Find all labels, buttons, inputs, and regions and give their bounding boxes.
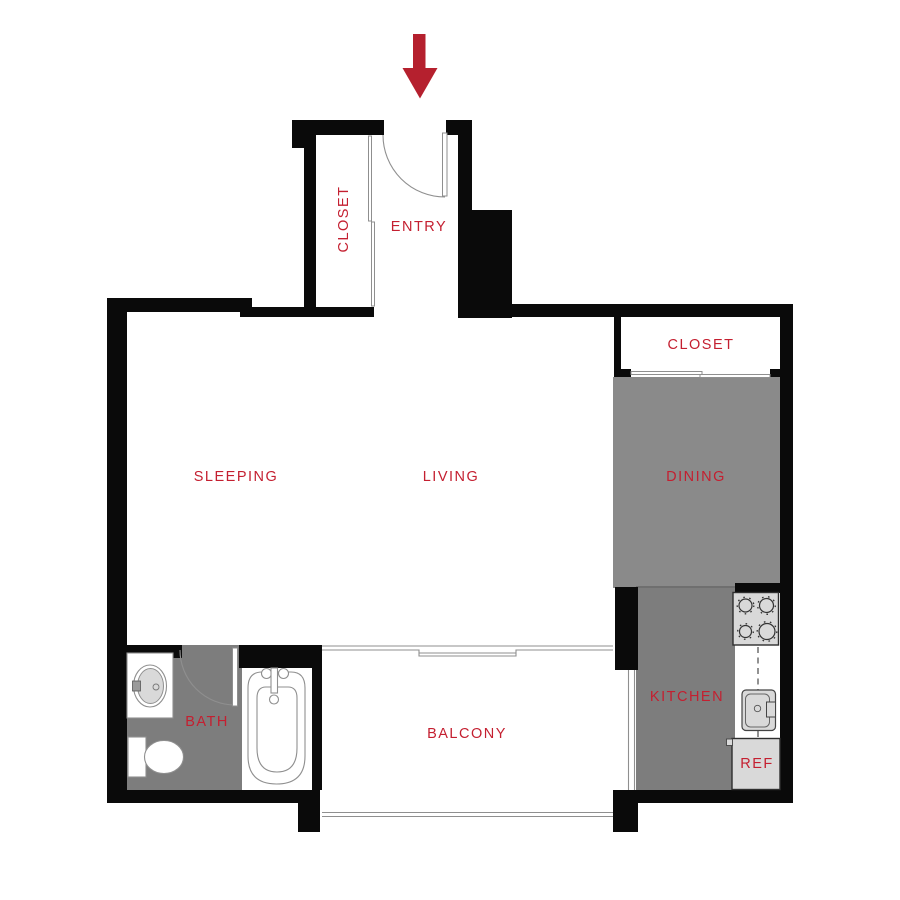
room-label-refrigerator: REF <box>740 756 774 772</box>
closet-sliding-door <box>369 136 375 306</box>
room-label-living: LIVING <box>423 469 480 485</box>
room-label-dining: DINING <box>666 469 726 485</box>
bathroom-sink <box>127 653 173 718</box>
room-label-entry: ENTRY <box>391 219 447 235</box>
bath-door <box>180 648 238 706</box>
kitchen-sink <box>742 690 776 731</box>
room-label-entry-closet: CLOSET <box>336 185 352 252</box>
room-label-bath: BATH <box>185 714 229 730</box>
stove <box>733 593 779 646</box>
room-label-balcony: BALCONY <box>427 726 507 742</box>
room-label-hall-closet: CLOSET <box>667 337 734 353</box>
balcony-sliding-door <box>322 646 613 656</box>
entry-arrow-icon <box>403 34 438 99</box>
hall-closet-sliding-door <box>631 372 770 378</box>
toilet <box>128 737 184 777</box>
room-label-kitchen: KITCHEN <box>650 689 724 705</box>
kitchen-window <box>628 670 635 790</box>
room-label-sleeping: SLEEPING <box>194 469 279 485</box>
bathtub <box>242 668 312 790</box>
entry-door <box>383 133 447 197</box>
balcony-railing <box>322 813 613 817</box>
floor-plan: CLOSET ENTRY CLOSET SLEEPING LIVING DINI… <box>0 0 900 900</box>
